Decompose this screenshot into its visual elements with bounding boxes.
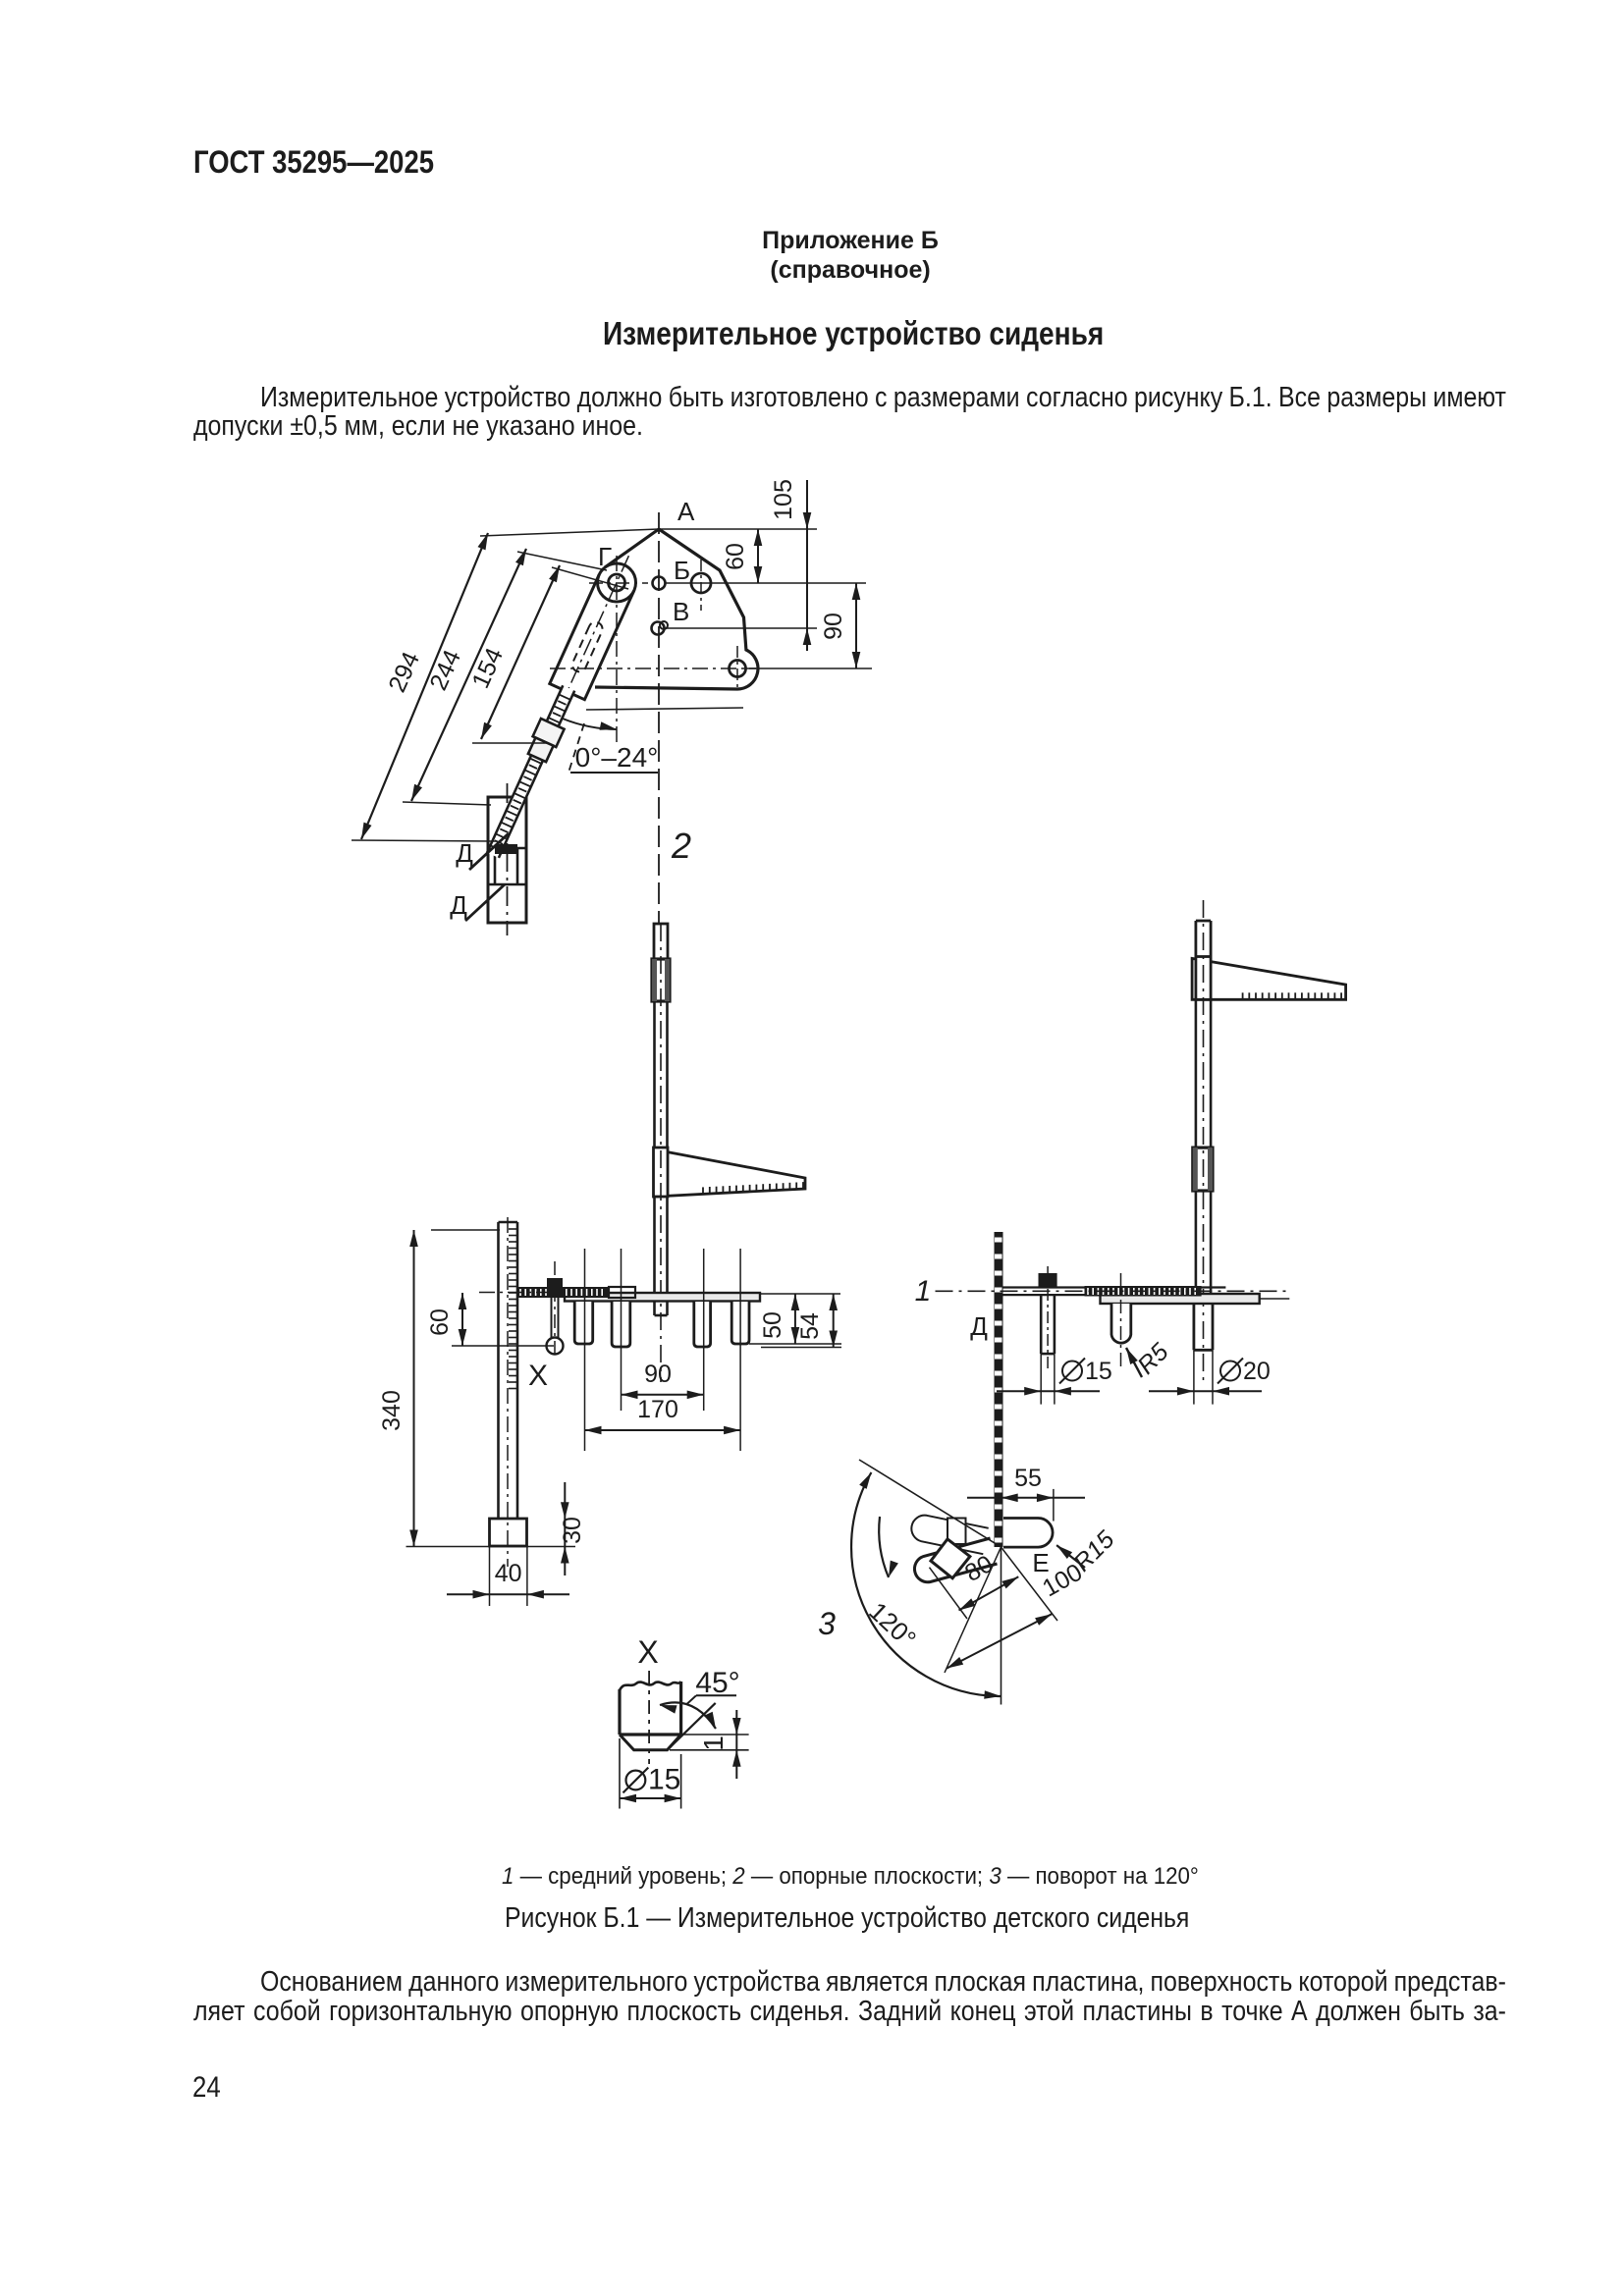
svg-text:А: А — [677, 497, 695, 526]
svg-text:15: 15 — [648, 1764, 680, 1796]
svg-text:170: 170 — [637, 1396, 678, 1423]
svg-text:120°: 120° — [863, 1596, 922, 1654]
svg-text:1: 1 — [915, 1275, 932, 1308]
svg-text:340: 340 — [378, 1390, 406, 1431]
svg-text:Д: Д — [970, 1311, 988, 1341]
svg-text:20: 20 — [1243, 1358, 1271, 1385]
svg-text:55: 55 — [1014, 1465, 1042, 1492]
svg-text:45°: 45° — [695, 1667, 739, 1699]
svg-text:1: 1 — [698, 1735, 729, 1751]
svg-text:40: 40 — [495, 1560, 522, 1587]
svg-text:Д: Д — [456, 838, 473, 868]
svg-text:Б: Б — [674, 556, 690, 585]
svg-text:60: 60 — [722, 543, 749, 570]
svg-text:90: 90 — [644, 1361, 672, 1388]
svg-text:2: 2 — [671, 826, 691, 866]
svg-text:Х: Х — [637, 1634, 658, 1670]
svg-text:90: 90 — [820, 613, 847, 640]
svg-text:Д: Д — [450, 890, 467, 920]
svg-text:Г: Г — [598, 542, 612, 571]
svg-text:244: 244 — [424, 646, 466, 695]
svg-text:30: 30 — [559, 1517, 586, 1544]
svg-text:0°–24°: 0°–24° — [575, 742, 659, 773]
svg-text:154: 154 — [466, 644, 509, 693]
svg-text:294: 294 — [383, 648, 425, 697]
svg-text:105: 105 — [770, 479, 797, 520]
svg-text:R5: R5 — [1132, 1338, 1173, 1379]
svg-text:В: В — [673, 597, 689, 626]
svg-text:50: 50 — [759, 1311, 786, 1339]
svg-text:60: 60 — [426, 1308, 454, 1336]
svg-text:3: 3 — [818, 1606, 836, 1641]
svg-text:15: 15 — [1085, 1358, 1112, 1385]
svg-text:Х: Х — [528, 1360, 548, 1392]
svg-text:54: 54 — [796, 1312, 824, 1340]
